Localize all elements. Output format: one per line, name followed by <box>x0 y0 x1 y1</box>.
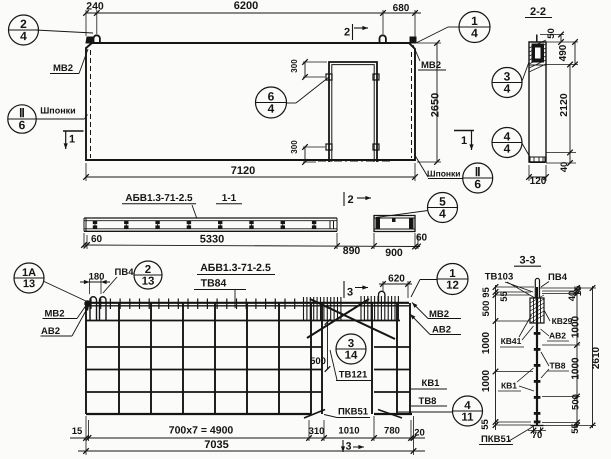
svg-text:490: 490 <box>558 44 569 61</box>
svg-text:ПКВ51: ПКВ51 <box>481 434 512 445</box>
svg-text:АБВ1.3-71-2.5: АБВ1.3-71-2.5 <box>125 193 193 204</box>
svg-text:680: 680 <box>393 3 410 14</box>
svg-text:4: 4 <box>504 82 511 96</box>
svg-text:ПВ4: ПВ4 <box>548 272 568 283</box>
svg-text:ТВ8: ТВ8 <box>419 396 437 407</box>
svg-text:3: 3 <box>348 338 354 350</box>
svg-text:ПКВ51: ПКВ51 <box>338 406 369 417</box>
svg-text:6200: 6200 <box>234 0 258 12</box>
svg-text:500: 500 <box>481 301 492 317</box>
svg-text:180: 180 <box>89 271 105 282</box>
svg-text:2610: 2610 <box>591 346 602 369</box>
svg-text:3-3: 3-3 <box>520 254 536 266</box>
svg-text:4: 4 <box>20 29 27 43</box>
svg-text:70: 70 <box>532 430 543 441</box>
svg-text:13: 13 <box>23 278 35 290</box>
svg-text:2: 2 <box>145 264 151 276</box>
svg-text:1-1: 1-1 <box>222 193 237 204</box>
svg-text:АВ2: АВ2 <box>432 324 451 335</box>
svg-text:АБВ1.3-71-2.5: АБВ1.3-71-2.5 <box>200 262 271 274</box>
svg-text:КВ1: КВ1 <box>501 380 517 390</box>
svg-text:14: 14 <box>345 350 358 362</box>
svg-text:500: 500 <box>571 394 582 410</box>
svg-text:900: 900 <box>385 247 403 259</box>
svg-text:4: 4 <box>464 400 471 412</box>
svg-text:АВ2: АВ2 <box>41 326 60 337</box>
svg-text:310: 310 <box>309 426 325 437</box>
svg-text:55: 55 <box>570 423 581 434</box>
svg-text:11: 11 <box>461 412 474 424</box>
svg-text:1: 1 <box>449 268 456 280</box>
svg-text:ТВ103: ТВ103 <box>485 271 514 282</box>
svg-text:4: 4 <box>439 207 446 221</box>
svg-text:1: 1 <box>461 135 467 147</box>
svg-text:2120: 2120 <box>558 93 570 117</box>
svg-text:700х7 = 4900: 700х7 = 4900 <box>169 424 234 436</box>
svg-text:60: 60 <box>91 234 103 245</box>
svg-text:5330: 5330 <box>200 233 224 245</box>
svg-text:240: 240 <box>86 0 104 12</box>
svg-text:МВ2: МВ2 <box>53 63 73 74</box>
svg-text:4: 4 <box>504 142 511 156</box>
svg-text:Шпонки: Шпонки <box>40 105 75 115</box>
svg-text:1000: 1000 <box>481 331 492 354</box>
svg-text:МВ2: МВ2 <box>421 60 441 71</box>
svg-text:МВ2: МВ2 <box>44 308 64 319</box>
svg-text:95: 95 <box>481 287 492 298</box>
svg-text:6: 6 <box>19 118 26 132</box>
svg-text:7120: 7120 <box>231 165 255 177</box>
svg-text:15: 15 <box>72 426 83 437</box>
svg-text:890: 890 <box>343 245 361 257</box>
svg-text:780: 780 <box>384 425 400 436</box>
svg-text:1010: 1010 <box>338 425 359 436</box>
svg-text:КВ41: КВ41 <box>501 336 522 346</box>
svg-text:55: 55 <box>480 419 491 430</box>
svg-text:4: 4 <box>471 26 478 40</box>
svg-text:ПВ4: ПВ4 <box>115 267 135 278</box>
svg-text:120: 120 <box>530 176 547 187</box>
svg-text:12: 12 <box>446 280 459 292</box>
svg-text:1000: 1000 <box>481 369 492 392</box>
svg-text:55: 55 <box>499 291 510 302</box>
svg-text:300: 300 <box>290 59 299 73</box>
svg-text:Шпонки: Шпонки <box>427 168 460 178</box>
svg-text:7035: 7035 <box>204 439 228 451</box>
svg-text:20: 20 <box>414 427 425 438</box>
svg-text:ТВ121: ТВ121 <box>339 369 368 380</box>
svg-text:60: 60 <box>416 232 428 243</box>
svg-text:ТВ84: ТВ84 <box>201 277 227 289</box>
svg-text:2-2: 2-2 <box>530 6 546 18</box>
svg-text:АВ2: АВ2 <box>549 330 566 340</box>
svg-text:КВ1: КВ1 <box>422 378 441 389</box>
svg-text:13: 13 <box>142 276 155 288</box>
svg-text:40: 40 <box>567 291 578 302</box>
svg-text:620: 620 <box>388 273 405 284</box>
svg-text:ТВ8: ТВ8 <box>549 360 565 370</box>
svg-text:2: 2 <box>347 194 353 206</box>
svg-text:3: 3 <box>347 286 353 298</box>
svg-text:1: 1 <box>69 133 75 145</box>
svg-text:1000: 1000 <box>571 357 582 380</box>
svg-text:500: 500 <box>310 356 326 367</box>
svg-text:300: 300 <box>290 140 299 154</box>
svg-text:2: 2 <box>344 26 350 38</box>
svg-text:6: 6 <box>474 177 481 191</box>
svg-text:4: 4 <box>268 102 275 116</box>
svg-text:40: 40 <box>559 162 570 173</box>
svg-text:50: 50 <box>546 28 557 39</box>
svg-text:2650: 2650 <box>430 93 442 117</box>
svg-text:КВ29: КВ29 <box>552 316 573 326</box>
